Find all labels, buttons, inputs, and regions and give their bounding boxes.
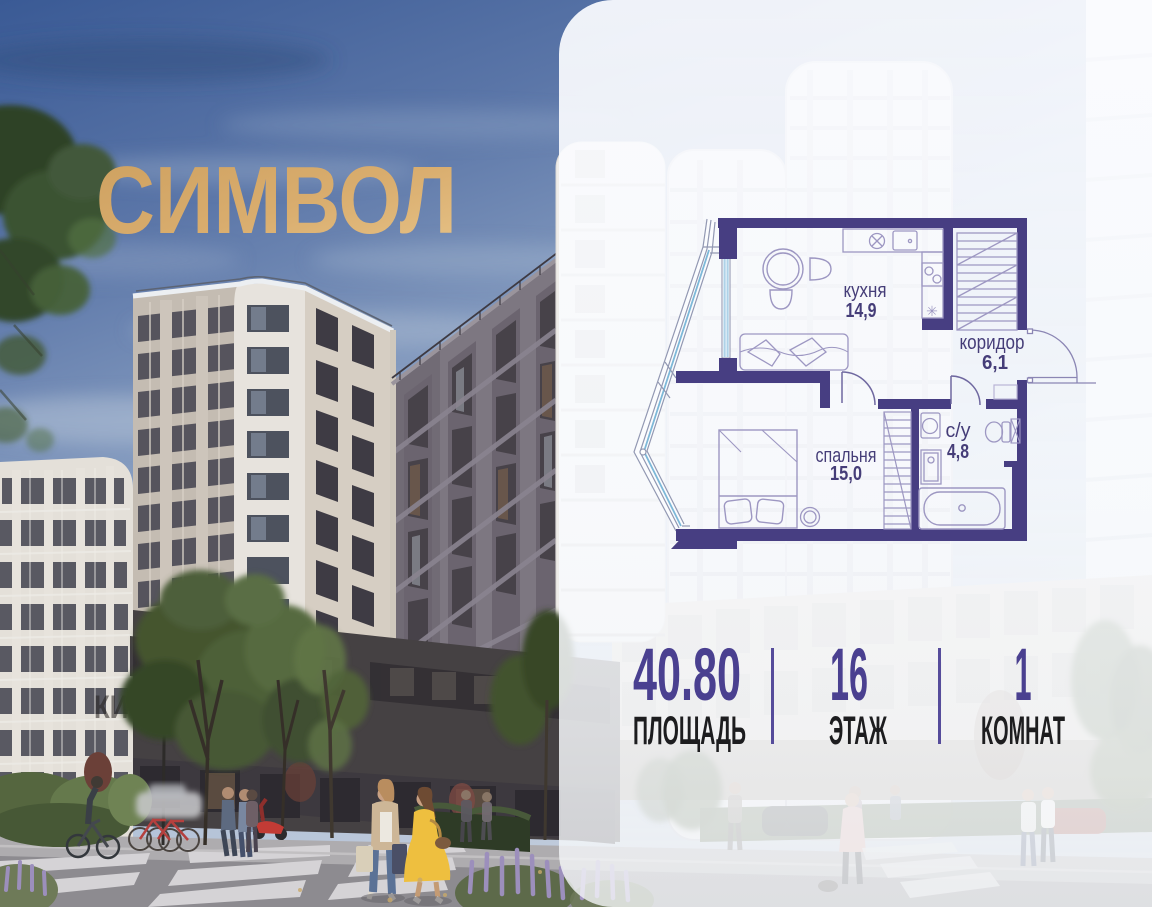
svg-text:ПЛОЩАДЬ: ПЛОЩАДЬ: [633, 709, 746, 753]
svg-text:кухня: кухня: [844, 280, 887, 302]
svg-text:✳: ✳: [926, 303, 938, 319]
svg-text:с/у: с/у: [946, 420, 971, 442]
svg-text:СИМВОЛ: СИМВОЛ: [96, 147, 457, 254]
svg-text:14,9: 14,9: [846, 300, 877, 322]
svg-text:1: 1: [1015, 633, 1032, 716]
svg-text:16: 16: [830, 633, 868, 716]
svg-text:6,1: 6,1: [982, 352, 1008, 374]
svg-text:КОМНАТ: КОМНАТ: [981, 709, 1065, 753]
svg-text:4,8: 4,8: [947, 441, 969, 463]
svg-text:ЭТАЖ: ЭТАЖ: [829, 709, 887, 753]
svg-text:15,0: 15,0: [830, 463, 862, 485]
svg-text:40.80: 40.80: [633, 633, 741, 716]
svg-text:коридор: коридор: [960, 332, 1025, 354]
